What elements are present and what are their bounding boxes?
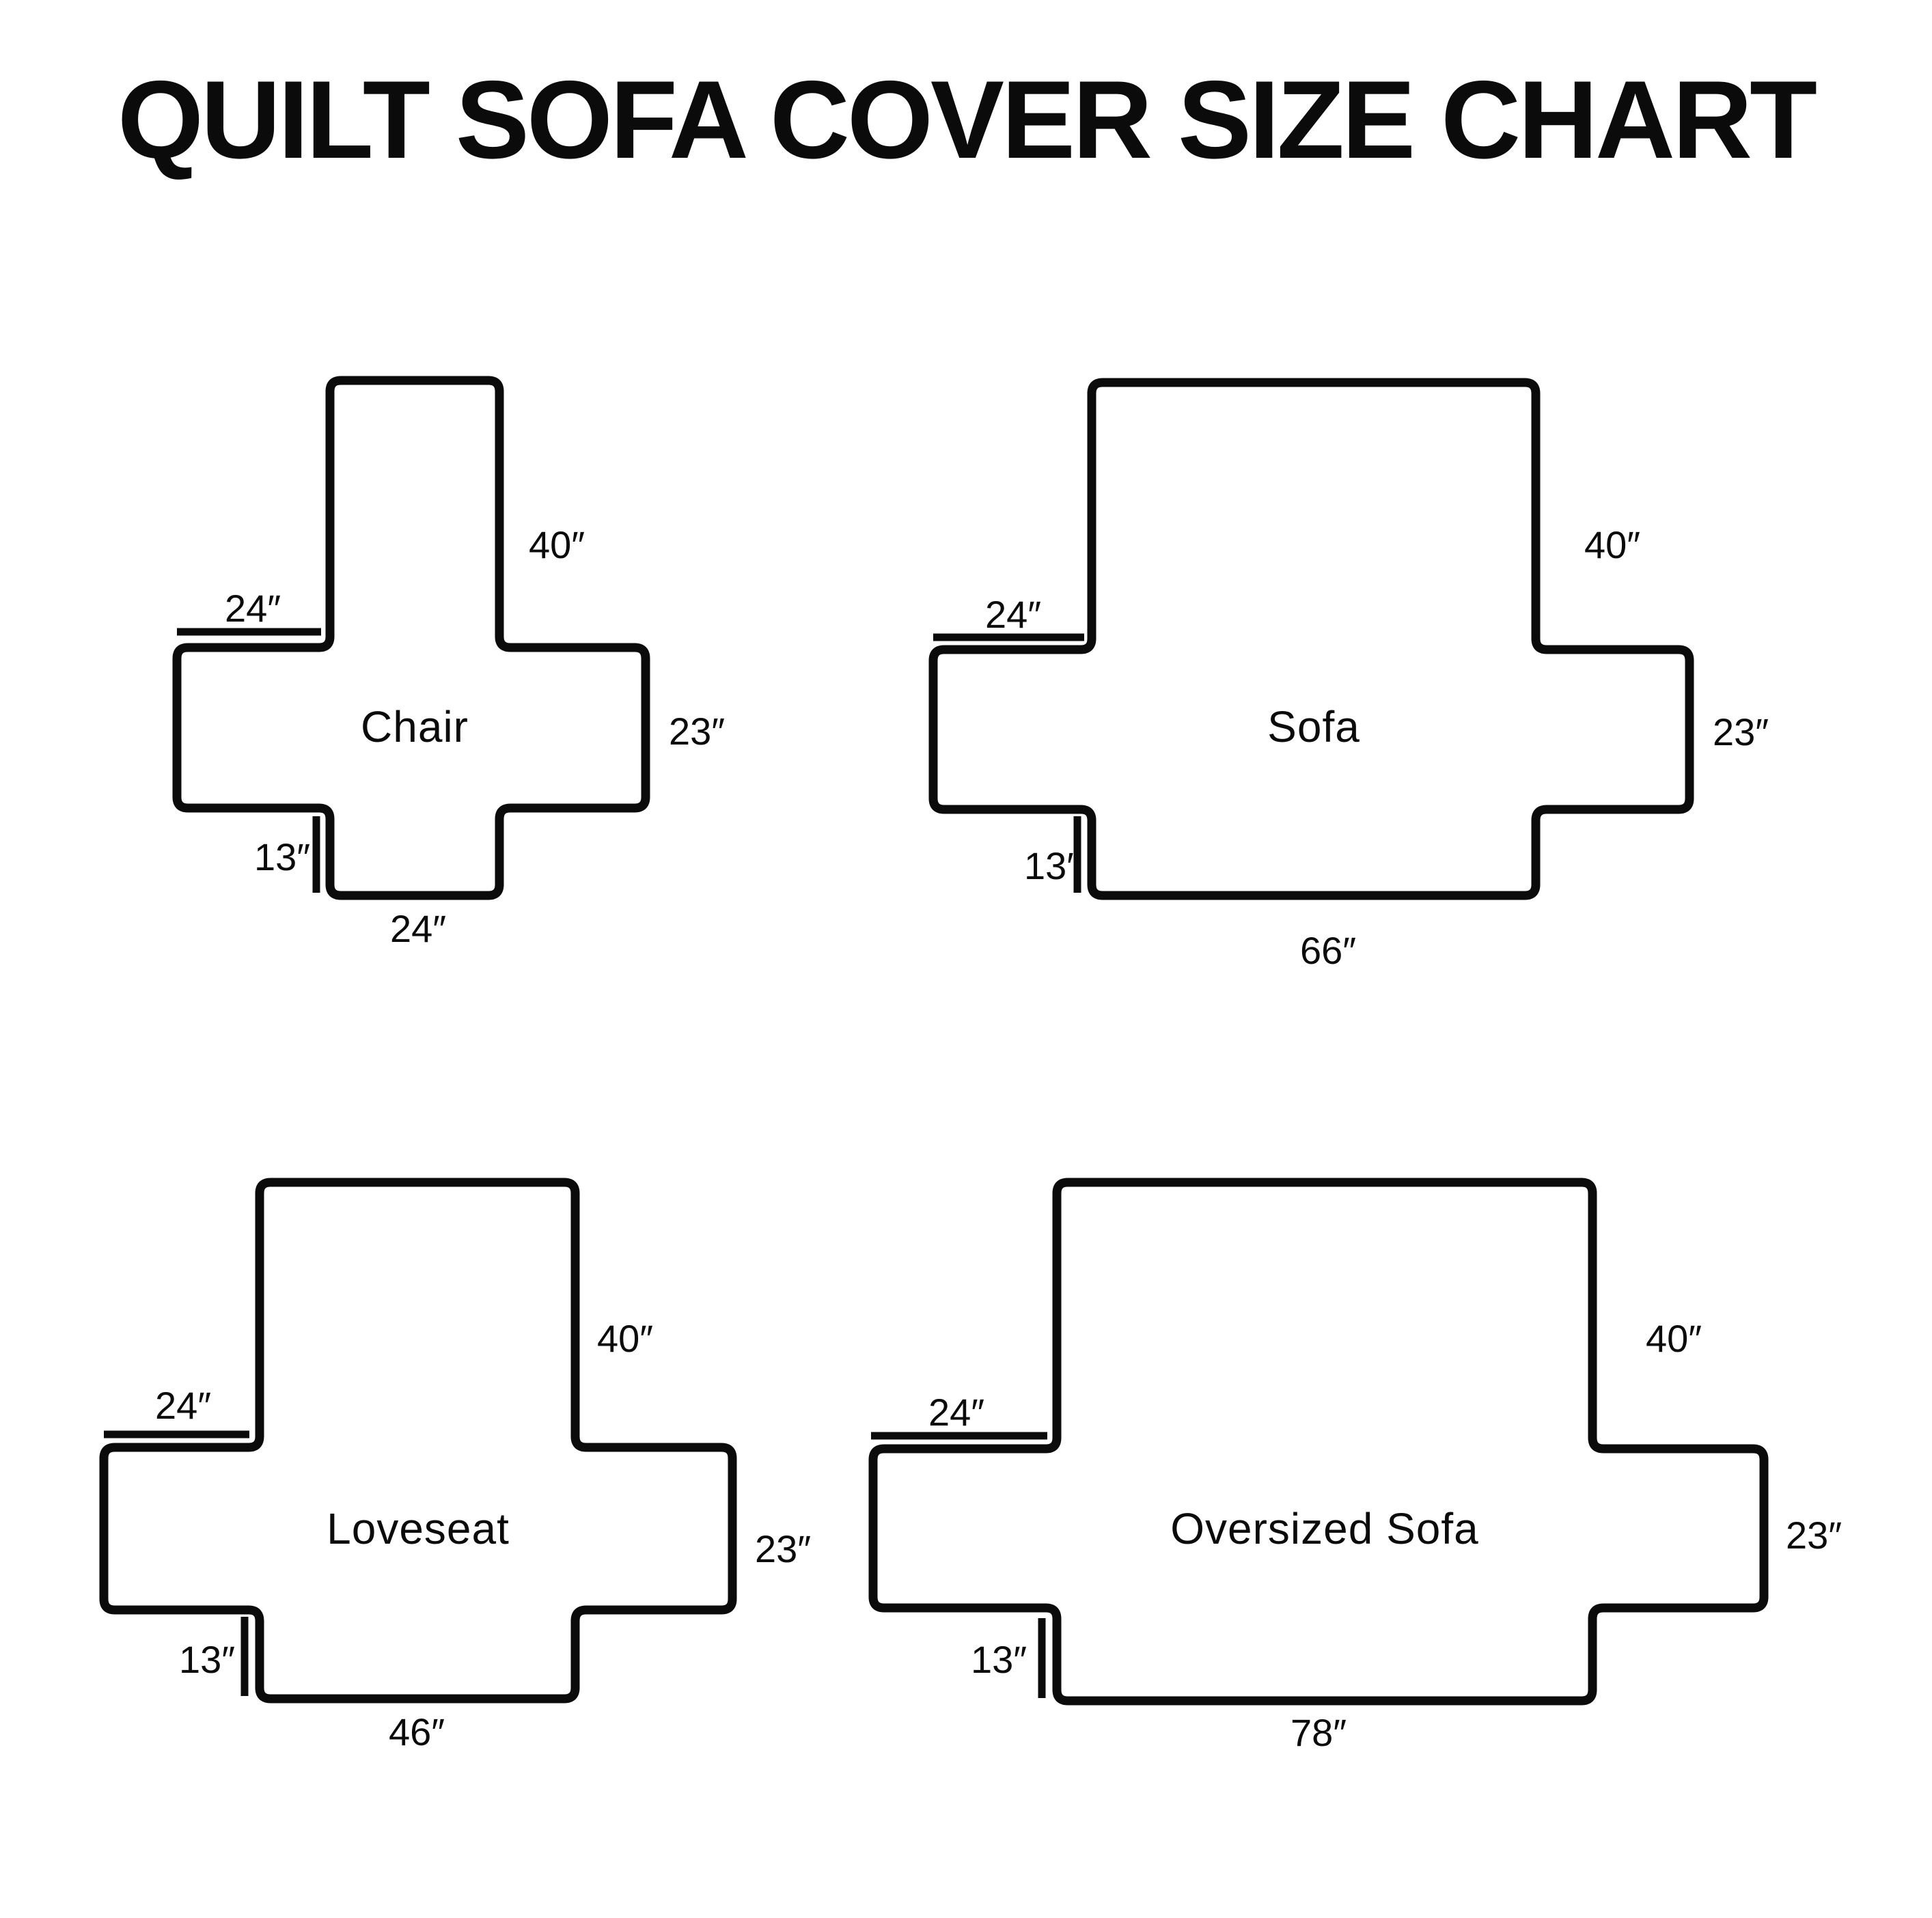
loveseat-arm-length-label: 24″ — [155, 1387, 211, 1425]
sofa-back-height-label: 40″ — [1584, 526, 1640, 564]
sofa-arm-length-label: 24″ — [985, 596, 1041, 634]
cover-diagrams-canvas — [0, 0, 1932, 1918]
chair-back-height-label: 40″ — [529, 526, 585, 564]
oversized-sofa-arm-height-label: 23″ — [1786, 1516, 1842, 1555]
loveseat-arm-height-label: 23″ — [755, 1530, 811, 1568]
loveseat-cover-outline — [104, 1182, 732, 1699]
chair-bottom-width-label: 24″ — [390, 910, 446, 948]
chair-arm-length-label: 24″ — [225, 589, 281, 628]
oversized-sofa-back-height-label: 40″ — [1646, 1320, 1702, 1358]
oversized-sofa-cover-outline — [873, 1182, 1764, 1701]
oversized-sofa-bottom-width-label: 78″ — [1291, 1714, 1347, 1752]
sofa-arm-height-label: 23″ — [1713, 713, 1769, 751]
loveseat-name-label: Loveseat — [327, 1507, 510, 1551]
chair-name-label: Chair — [361, 705, 469, 749]
loveseat-back-height-label: 40″ — [597, 1320, 653, 1358]
oversized-sofa-front-drop-label: 13″ — [971, 1641, 1027, 1679]
size-chart-page: QUILT SOFA COVER SIZE CHART 40″ 24″ 23″ … — [0, 0, 1932, 1918]
loveseat-bottom-width-label: 46″ — [389, 1713, 445, 1751]
oversized-sofa-name-label: Oversized Sofa — [1170, 1507, 1479, 1551]
oversized-sofa-arm-length-label: 24″ — [928, 1393, 984, 1432]
sofa-front-drop-label: 13″ — [1024, 847, 1080, 885]
chair-cover-outline — [177, 380, 646, 895]
sofa-name-label: Sofa — [1267, 705, 1360, 749]
chair-arm-height-label: 23″ — [669, 712, 725, 751]
sofa-bottom-width-label: 66″ — [1300, 932, 1356, 970]
chair-front-drop-label: 13″ — [254, 838, 310, 876]
loveseat-front-drop-label: 13″ — [179, 1641, 235, 1679]
